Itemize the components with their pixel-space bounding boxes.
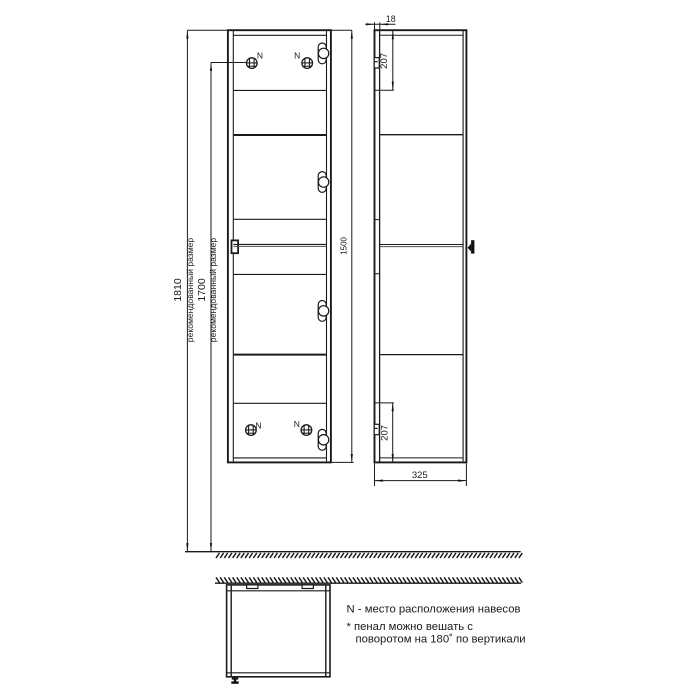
- svg-text:207: 207: [379, 53, 390, 69]
- svg-text:поворотом на 180˚ по вертикали: поворотом на 180˚ по вертикали: [356, 633, 526, 645]
- svg-text:N: N: [294, 51, 300, 61]
- svg-text:* пенал можно вешать с: * пенал можно вешать с: [347, 621, 474, 633]
- svg-text:N: N: [255, 420, 261, 430]
- svg-text:рекомендованный размер: рекомендованный размер: [185, 238, 195, 343]
- svg-text:N: N: [294, 419, 300, 429]
- svg-text:325: 325: [412, 470, 428, 481]
- svg-text:207: 207: [379, 425, 390, 441]
- svg-text:1810: 1810: [172, 278, 184, 302]
- svg-text:N - место расположения навесов: N - место расположения навесов: [347, 603, 521, 615]
- svg-text:рекомендованный размер: рекомендованный размер: [208, 238, 218, 343]
- svg-text:N: N: [257, 50, 263, 60]
- svg-text:1500: 1500: [339, 236, 348, 254]
- svg-text:1700: 1700: [196, 278, 208, 302]
- svg-text:18: 18: [386, 14, 396, 24]
